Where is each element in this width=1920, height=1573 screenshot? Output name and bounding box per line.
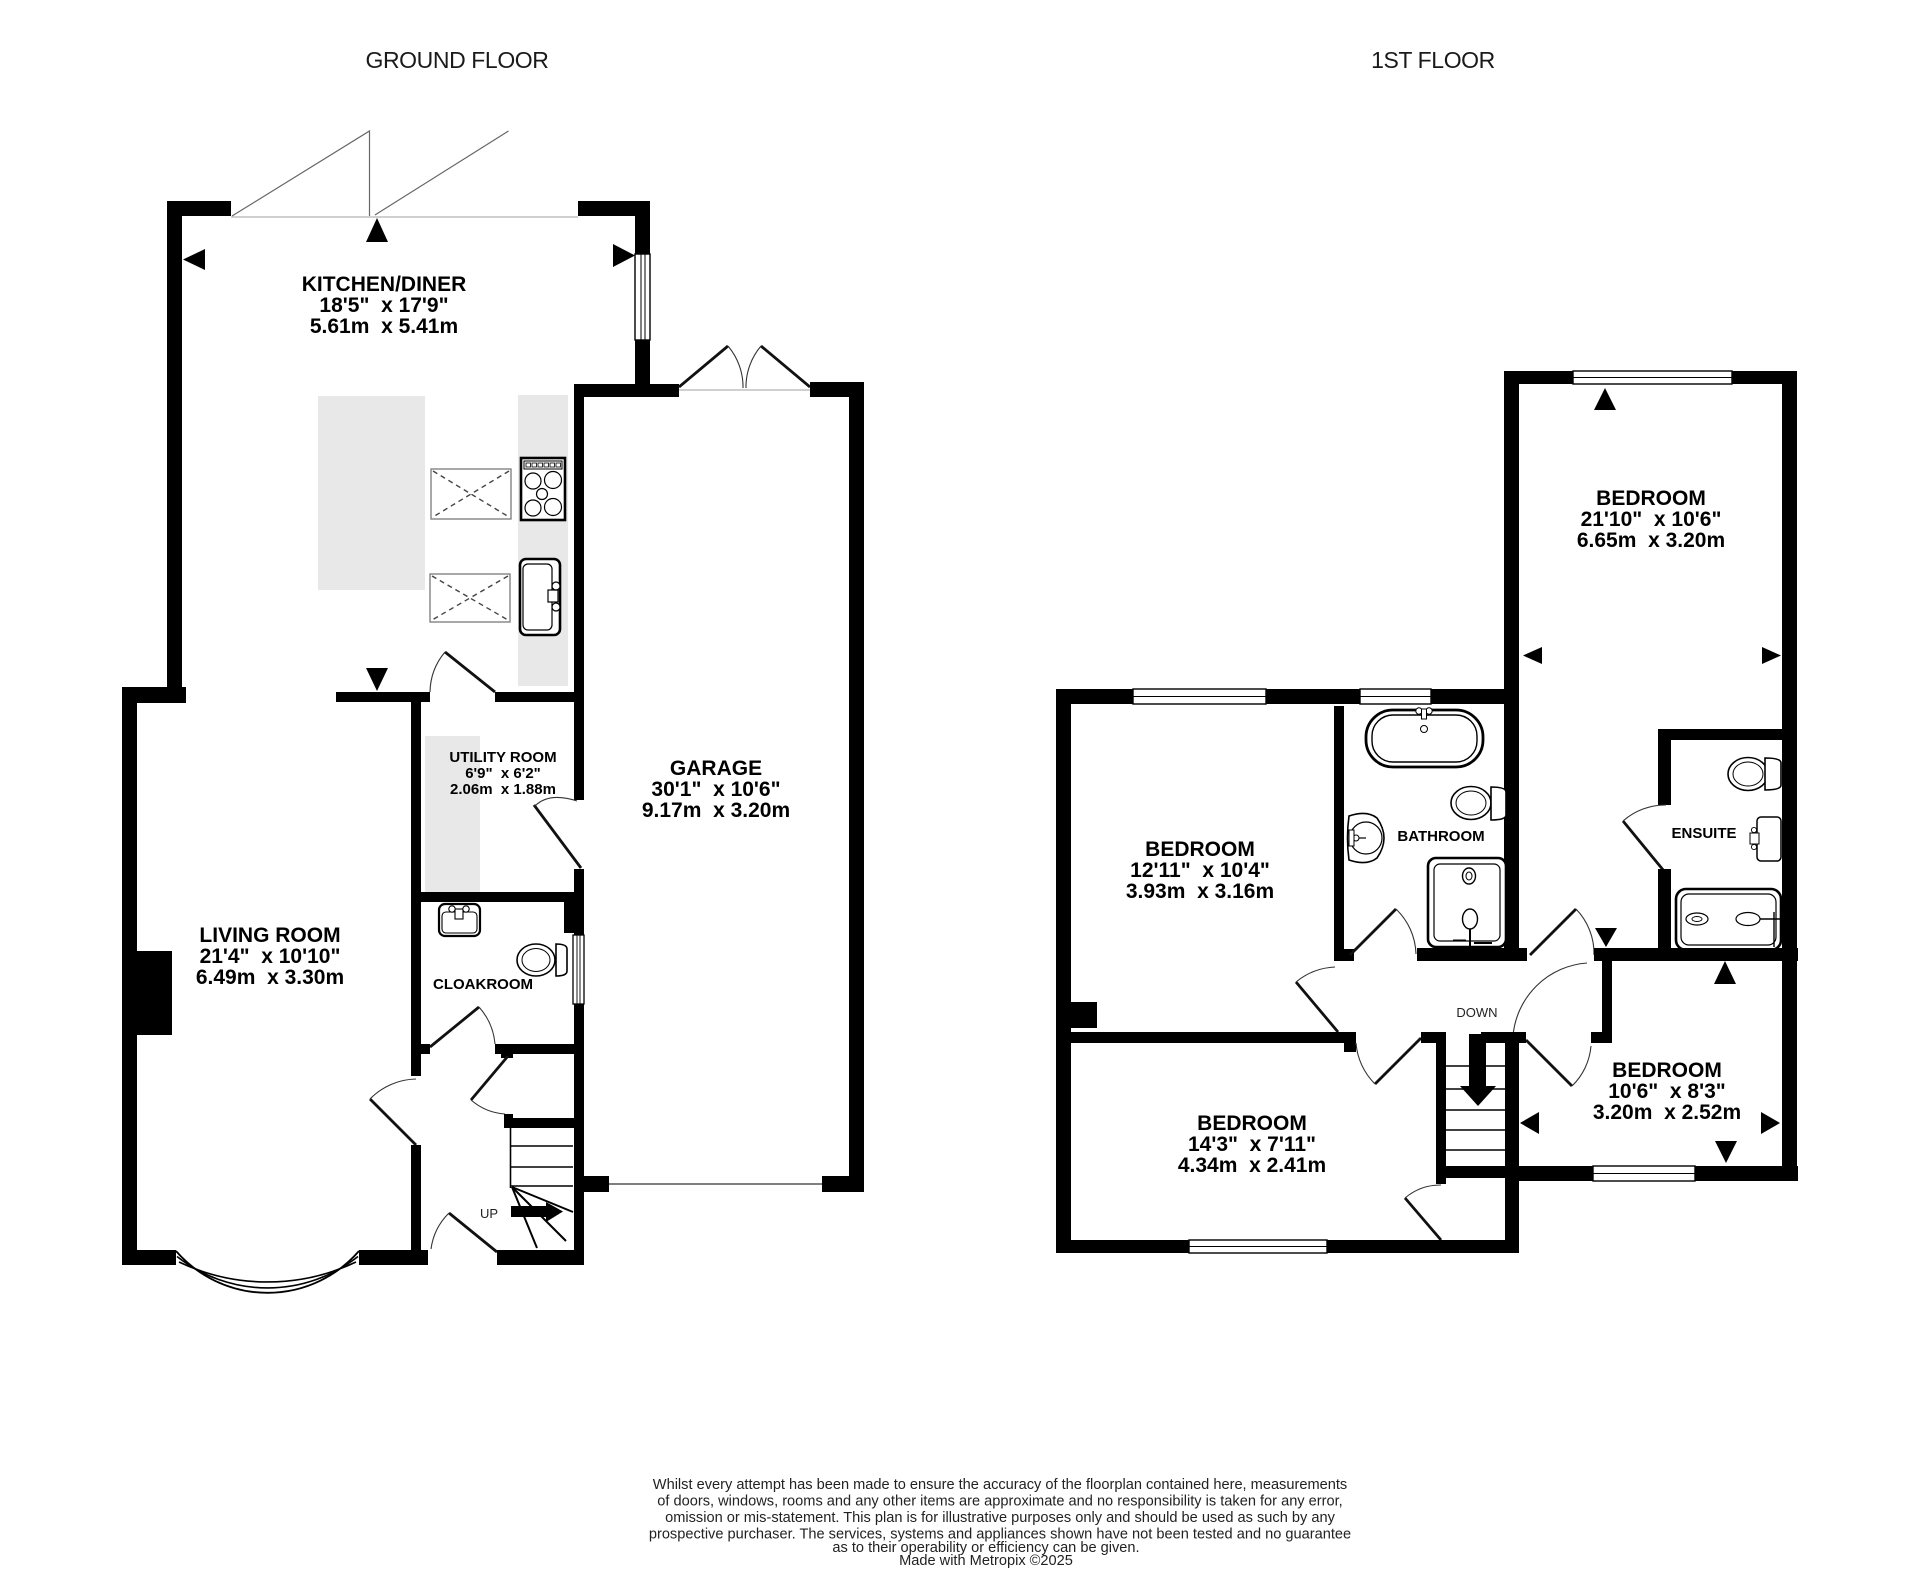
svg-text:30'1" x 10'6": 30'1" x 10'6" (651, 778, 780, 801)
svg-text:DOWN: DOWN (1456, 1005, 1497, 1020)
svg-text:10'6" x 8'3": 10'6" x 8'3" (1608, 1080, 1725, 1103)
svg-text:BEDROOM: BEDROOM (1596, 487, 1706, 510)
svg-text:5.61m x 5.41m: 5.61m x 5.41m (310, 315, 458, 338)
svg-text:UP: UP (480, 1206, 498, 1221)
svg-text:2.06m x 1.88m: 2.06m x 1.88m (450, 781, 556, 798)
svg-text:9.17m x 3.20m: 9.17m x 3.20m (642, 799, 790, 822)
svg-text:of doors, windows, rooms and a: of doors, windows, rooms and any other i… (657, 1494, 1342, 1510)
svg-text:BEDROOM: BEDROOM (1145, 838, 1255, 861)
svg-text:6.65m x 3.20m: 6.65m x 3.20m (1577, 529, 1725, 552)
svg-text:21'4" x 10'10": 21'4" x 10'10" (200, 945, 341, 968)
svg-text:6'9" x 6'2": 6'9" x 6'2" (465, 765, 541, 782)
svg-text:GARAGE: GARAGE (670, 757, 762, 780)
svg-text:BATHROOM: BATHROOM (1397, 828, 1484, 845)
svg-text:3.20m x 2.52m: 3.20m x 2.52m (1593, 1101, 1741, 1124)
svg-text:KITCHEN/DINER: KITCHEN/DINER (302, 273, 467, 296)
svg-text:14'3" x 7'11": 14'3" x 7'11" (1188, 1133, 1316, 1156)
svg-text:ENSUITE: ENSUITE (1671, 825, 1736, 842)
svg-text:21'10" x 10'6": 21'10" x 10'6" (1581, 508, 1722, 531)
svg-text:UTILITY ROOM: UTILITY ROOM (449, 749, 556, 766)
svg-text:Whilst every attempt has been: Whilst every attempt has been made to en… (653, 1477, 1347, 1493)
svg-text:18'5" x 17'9": 18'5" x 17'9" (319, 294, 448, 317)
svg-text:12'11" x 10'4": 12'11" x 10'4" (1130, 859, 1270, 882)
svg-text:BEDROOM: BEDROOM (1612, 1059, 1722, 1082)
svg-text:GROUND FLOOR: GROUND FLOOR (365, 47, 548, 73)
svg-text:LIVING ROOM: LIVING ROOM (199, 924, 340, 947)
svg-text:4.34m x 2.41m: 4.34m x 2.41m (1178, 1154, 1326, 1177)
svg-text:CLOAKROOM: CLOAKROOM (433, 976, 533, 993)
svg-text:1ST FLOOR: 1ST FLOOR (1371, 47, 1495, 73)
svg-text:6.49m x 3.30m: 6.49m x 3.30m (196, 966, 344, 989)
svg-text:Made with Metropix ©2025: Made with Metropix ©2025 (899, 1553, 1073, 1568)
svg-text:3.93m x 3.16m: 3.93m x 3.16m (1126, 880, 1274, 903)
svg-text:BEDROOM: BEDROOM (1197, 1112, 1307, 1135)
svg-text:omission or mis-statement. Thi: omission or mis-statement. This plan is … (665, 1510, 1335, 1526)
